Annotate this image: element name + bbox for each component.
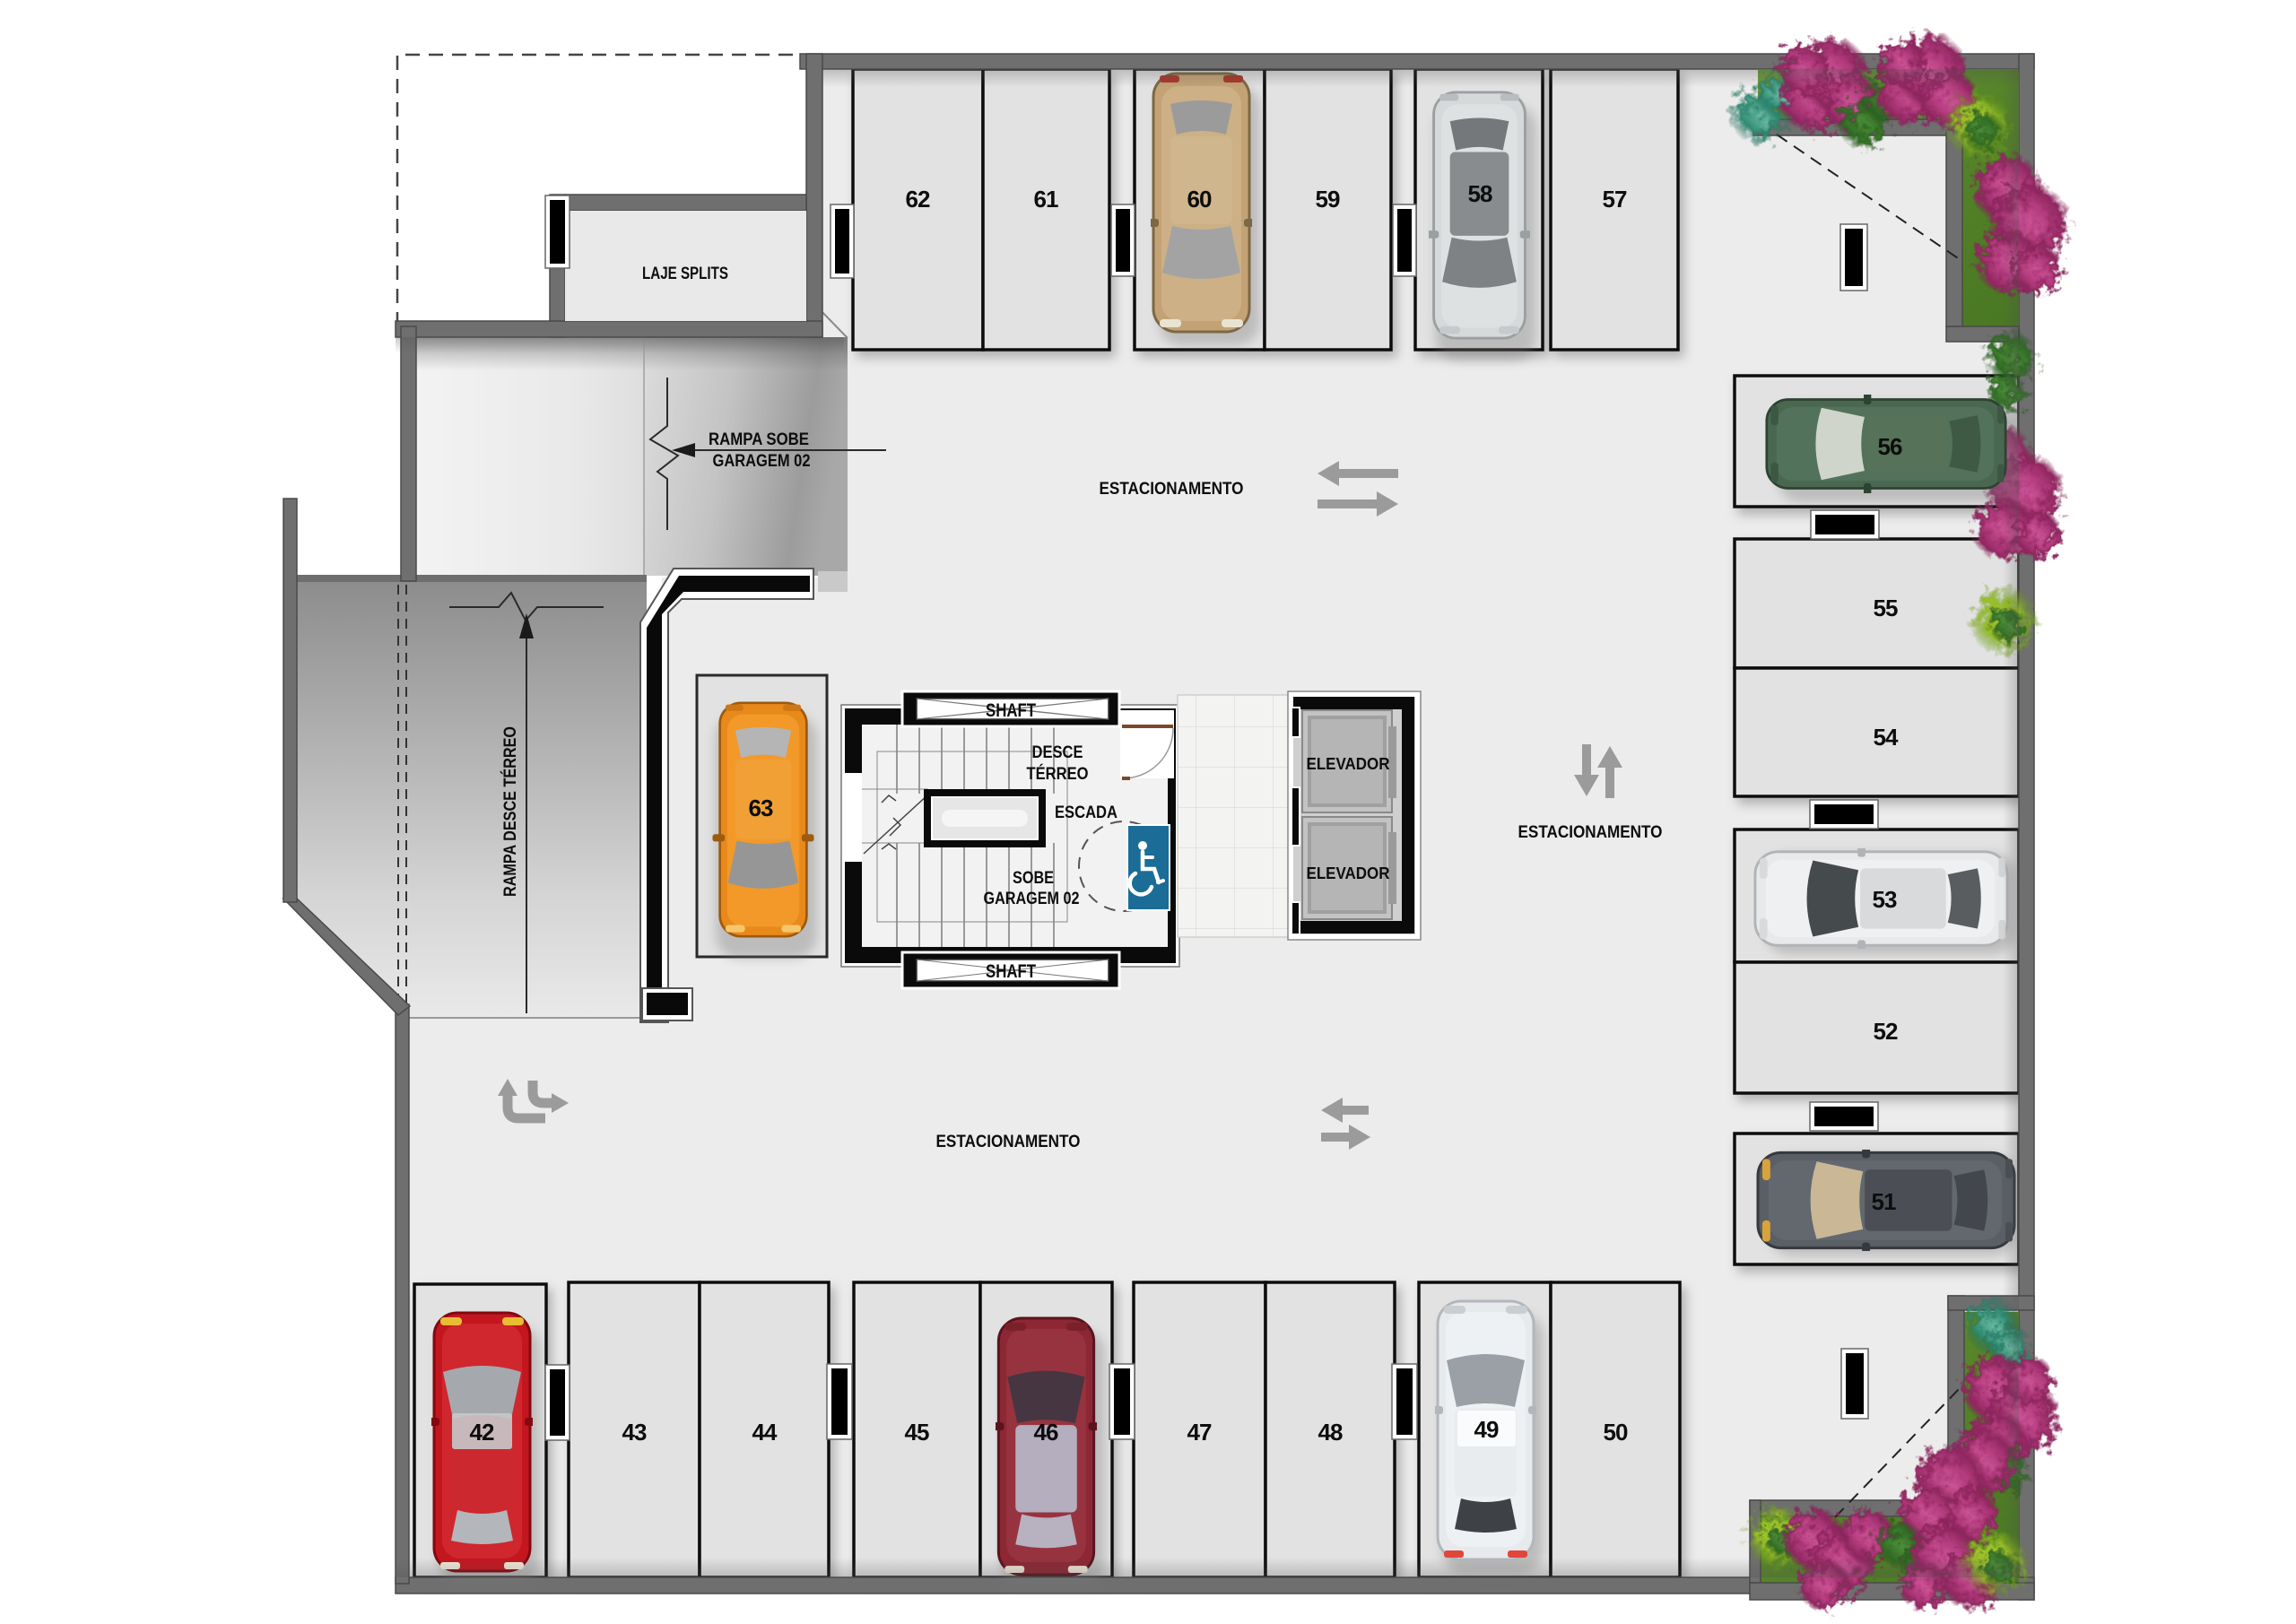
svg-text:60: 60 — [1187, 186, 1212, 213]
svg-text:46: 46 — [1034, 1419, 1058, 1446]
svg-text:57: 57 — [1603, 186, 1627, 213]
svg-text:54: 54 — [1874, 724, 1899, 751]
svg-text:61: 61 — [1034, 186, 1058, 213]
svg-text:43: 43 — [622, 1419, 647, 1446]
svg-text:58: 58 — [1468, 180, 1492, 207]
svg-text:DESCE: DESCE — [1032, 743, 1083, 762]
svg-text:62: 62 — [906, 186, 930, 213]
svg-text:59: 59 — [1316, 186, 1340, 213]
svg-text:ELEVADOR: ELEVADOR — [1307, 755, 1390, 773]
svg-text:51: 51 — [1872, 1188, 1896, 1215]
svg-text:55: 55 — [1874, 595, 1898, 621]
svg-text:LAJE SPLITS: LAJE SPLITS — [642, 265, 728, 283]
svg-text:47: 47 — [1187, 1419, 1212, 1446]
svg-text:44: 44 — [752, 1419, 778, 1446]
svg-text:ESTACIONAMENTO: ESTACIONAMENTO — [1518, 823, 1663, 842]
svg-text:RAMPA SOBE: RAMPA SOBE — [709, 430, 809, 449]
svg-text:49: 49 — [1474, 1416, 1499, 1443]
svg-text:SHAFT: SHAFT — [986, 961, 1036, 982]
svg-text:ESCADA: ESCADA — [1055, 803, 1118, 822]
svg-text:48: 48 — [1318, 1419, 1343, 1446]
svg-text:ESTACIONAMENTO: ESTACIONAMENTO — [1100, 480, 1244, 499]
svg-text:45: 45 — [905, 1419, 929, 1446]
svg-text:ELEVADOR: ELEVADOR — [1307, 864, 1390, 882]
svg-text:63: 63 — [749, 795, 773, 821]
svg-text:53: 53 — [1873, 886, 1897, 913]
svg-text:56: 56 — [1878, 433, 1902, 460]
svg-text:TÉRREO: TÉRREO — [1027, 764, 1089, 784]
svg-text:SHAFT: SHAFT — [986, 700, 1036, 721]
svg-text:50: 50 — [1604, 1419, 1628, 1446]
svg-text:ESTACIONAMENTO: ESTACIONAMENTO — [936, 1133, 1081, 1151]
svg-text:GARAGEM 02: GARAGEM 02 — [713, 452, 811, 471]
svg-text:RAMPA DESCE TÉRREO: RAMPA DESCE TÉRREO — [500, 726, 520, 897]
svg-text:52: 52 — [1874, 1018, 1898, 1045]
svg-text:GARAGEM 02: GARAGEM 02 — [984, 890, 1080, 908]
svg-text:42: 42 — [470, 1419, 494, 1446]
svg-text:SOBE: SOBE — [1013, 869, 1054, 888]
